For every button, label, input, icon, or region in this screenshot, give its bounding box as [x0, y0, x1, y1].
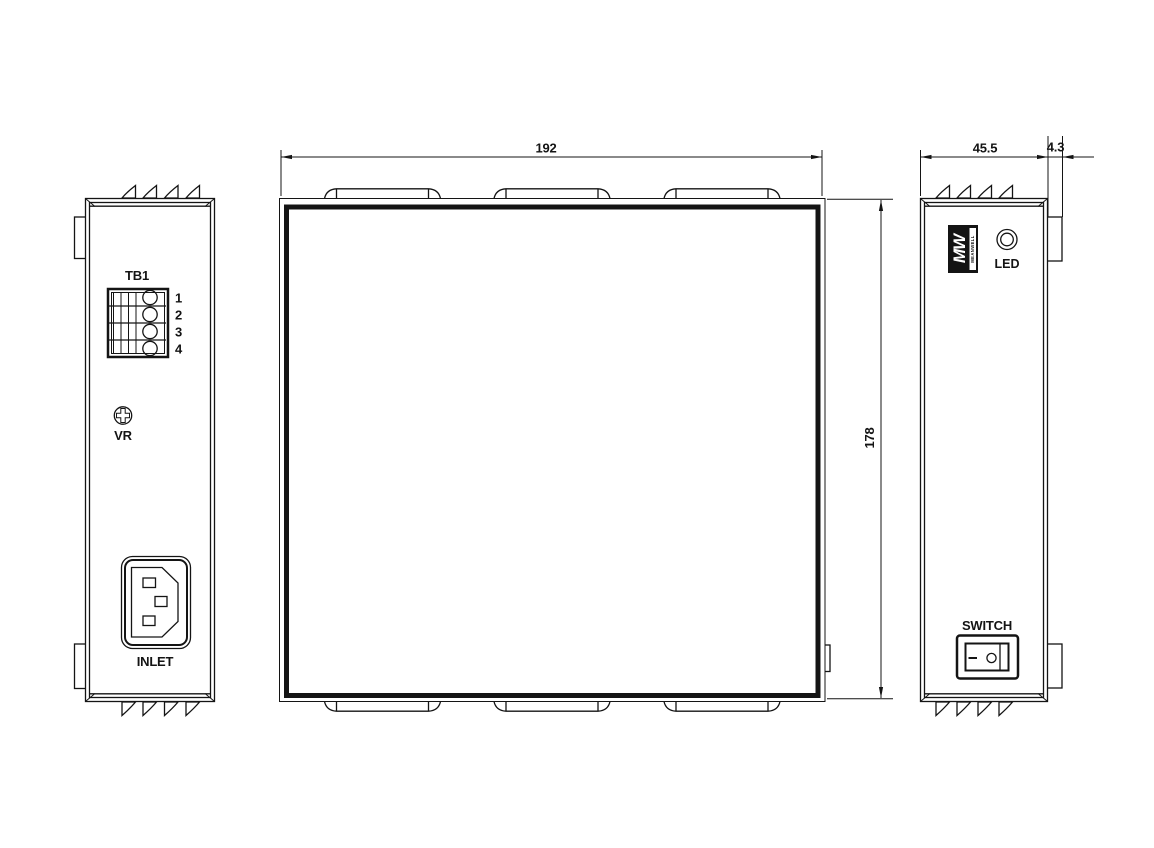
heatsink-fins-bottom: [936, 702, 1013, 716]
heatsink-fin: [165, 186, 179, 199]
dimension-width: 192: [281, 141, 822, 197]
heatsink-fin: [936, 186, 950, 199]
dim-height-text: 45.5: [973, 141, 998, 156]
technical-drawing-canvas: TB1 1 2 3 4 VR: [0, 0, 1154, 848]
mounting-tabs-bottom: [325, 702, 781, 712]
heatsink-fins-top: [122, 186, 200, 199]
mounting-tab: [325, 189, 441, 199]
heatsink-fin: [165, 702, 179, 716]
heatsink-fin: [143, 186, 157, 199]
dim-arrow: [879, 200, 883, 211]
heatsink-fin: [999, 186, 1013, 199]
drawing-page: TB1 1 2 3 4 VR: [0, 0, 1154, 848]
top-view: [280, 189, 831, 711]
dim-arrow: [281, 155, 292, 159]
led-label: LED: [995, 257, 1020, 271]
heatsink-fin: [186, 702, 200, 716]
dimension-clip: 4.3: [1047, 136, 1094, 217]
dim-depth-text: 178: [862, 427, 877, 448]
heatsink-fin: [122, 702, 136, 716]
mounting-tab: [325, 702, 441, 712]
din-clip: [1047, 644, 1062, 688]
pin-number: 3: [175, 325, 182, 340]
dim-arrow: [921, 155, 932, 159]
heatsink-fin: [999, 702, 1013, 716]
din-clip: [1047, 217, 1062, 261]
logo-sub-text: MEANWELL: [970, 235, 975, 262]
left-end-view: TB1 1 2 3 4 VR: [75, 186, 215, 716]
din-clip: [75, 644, 87, 689]
heatsink-fin: [978, 186, 992, 199]
switch-label: SWITCH: [962, 618, 1012, 633]
din-clip: [75, 217, 87, 259]
heatsink-fins-top: [936, 186, 1013, 199]
heatsink-fin: [957, 186, 971, 199]
dimension-depth: 178: [827, 199, 893, 699]
mounting-tab: [494, 189, 610, 199]
mounting-tab: [494, 702, 610, 712]
brand-logo: MW MEANWELL: [948, 225, 978, 273]
heatsink-fin: [122, 186, 136, 199]
mounting-tabs-top: [325, 189, 781, 199]
mounting-tab: [664, 189, 780, 199]
dim-arrow: [811, 155, 822, 159]
dim-width-text: 192: [535, 141, 556, 156]
top-body-outline: [280, 199, 826, 702]
dimension-height: 45.5: [921, 141, 1049, 197]
heatsink-fin: [957, 702, 971, 716]
pin-number: 1: [175, 291, 182, 306]
dim-arrow: [1037, 155, 1048, 159]
pin-number: 2: [175, 308, 182, 323]
vr-label: VR: [114, 428, 132, 443]
tb1-label: TB1: [125, 268, 149, 283]
right-end-view: MW MEANWELL LED SWITCH: [921, 186, 1063, 716]
pin-number: 4: [175, 342, 183, 357]
heatsink-fin: [186, 186, 200, 199]
logo-mw-text: MW: [950, 232, 969, 263]
mounting-tab: [664, 702, 780, 712]
dim-arrow: [1063, 155, 1074, 159]
dim-arrow: [879, 687, 883, 698]
heatsink-fin: [978, 702, 992, 716]
heatsink-fin: [143, 702, 157, 716]
heatsink-fin: [936, 702, 950, 716]
dim-clip-text: 4.3: [1047, 140, 1064, 155]
heatsink-fins-bottom: [122, 702, 200, 716]
inlet-label: INLET: [137, 654, 174, 669]
